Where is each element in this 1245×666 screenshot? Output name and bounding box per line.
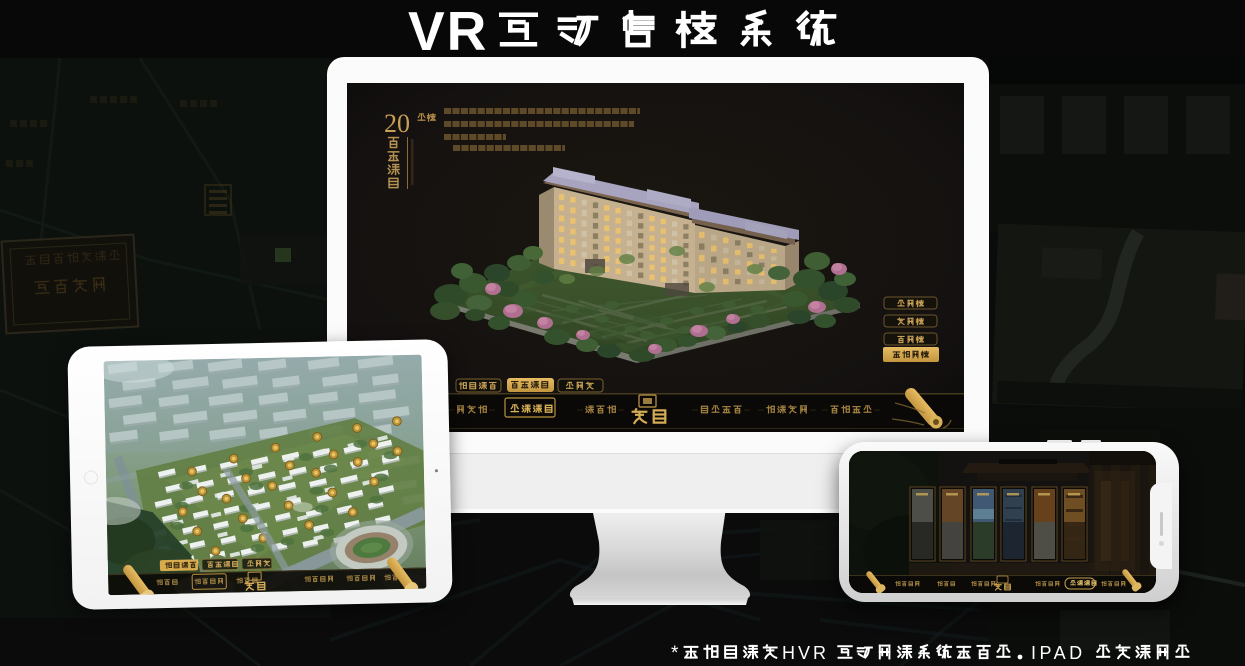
svg-text:HVR: HVR [782,643,829,663]
svg-text:*: * [671,643,679,664]
svg-text:IPAD: IPAD [1031,643,1086,663]
